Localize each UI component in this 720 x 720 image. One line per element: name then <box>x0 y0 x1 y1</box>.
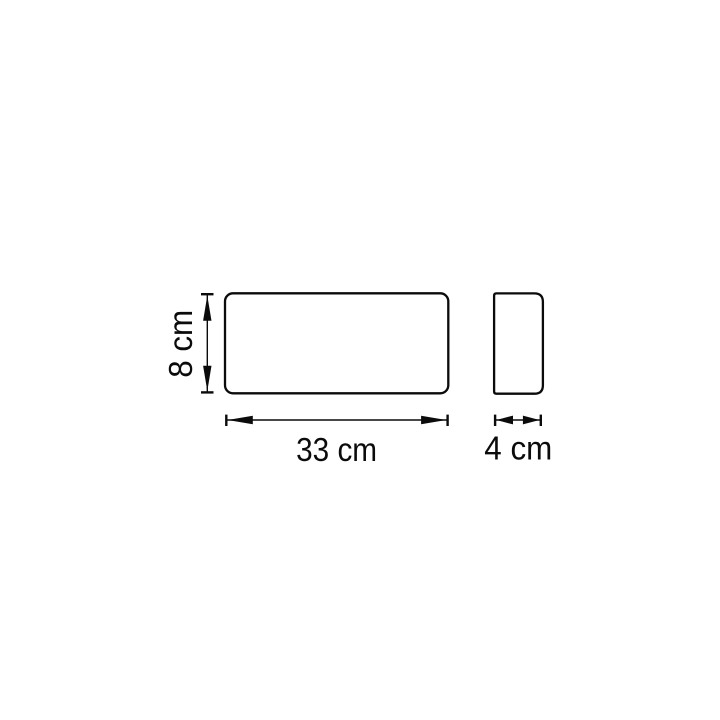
svg-text:33 cm: 33 cm <box>296 432 377 469</box>
svg-text:8 cm: 8 cm <box>163 310 200 378</box>
svg-text:4 cm: 4 cm <box>484 431 552 468</box>
